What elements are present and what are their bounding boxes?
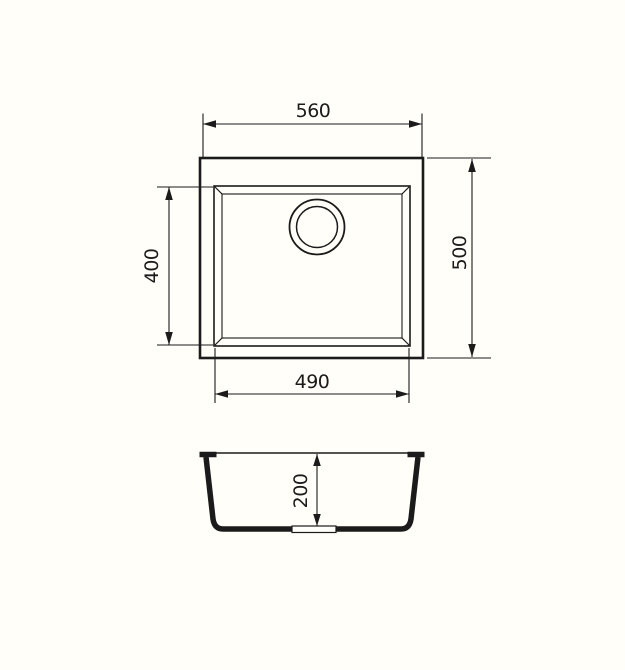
dimension-label-overall-depth: 500 bbox=[449, 236, 471, 271]
bowl-chamfer-top-right bbox=[401, 187, 409, 195]
drawing-canvas: 560 500 400 490 bbox=[0, 0, 625, 670]
arrow-left-icon bbox=[215, 390, 228, 398]
dimension-bowl-width: 490 bbox=[215, 348, 409, 403]
dimension-label-overall-width: 560 bbox=[296, 100, 331, 122]
sink-outer-rim bbox=[200, 158, 423, 358]
bowl-top-edge bbox=[214, 186, 410, 346]
dimension-label-bowl-width: 490 bbox=[295, 371, 330, 393]
bowl-chamfer-bottom-left bbox=[215, 337, 223, 345]
dimension-overall-width: 560 bbox=[203, 100, 422, 157]
top-view bbox=[200, 158, 423, 358]
arrow-up-icon bbox=[468, 159, 476, 172]
dimension-overall-depth: 500 bbox=[427, 158, 491, 358]
bowl-bevel-edge bbox=[222, 194, 402, 338]
arrow-right-icon bbox=[396, 390, 409, 398]
drain-inner-circle bbox=[297, 207, 338, 248]
arrow-left-icon bbox=[203, 120, 216, 128]
bowl-chamfer-top-left bbox=[215, 187, 223, 195]
arrow-down-icon bbox=[165, 332, 173, 345]
sink-dimension-drawing: 560 500 400 490 bbox=[0, 0, 625, 670]
dimension-label-bowl-height: 200 bbox=[290, 474, 312, 509]
section-drain-outlet bbox=[292, 526, 336, 533]
dimension-label-bowl-depth: 400 bbox=[141, 249, 163, 284]
bowl-chamfer-bottom-right bbox=[401, 337, 409, 345]
dimension-bowl-depth: 400 bbox=[141, 187, 213, 345]
arrow-up-icon bbox=[313, 454, 321, 466]
drain-outer-circle bbox=[290, 200, 345, 255]
section-view bbox=[200, 453, 425, 533]
section-bowl-body bbox=[206, 457, 418, 529]
dimension-bowl-height: 200 bbox=[290, 454, 321, 526]
arrow-right-icon bbox=[409, 120, 422, 128]
arrow-up-icon bbox=[165, 187, 173, 200]
arrow-down-icon bbox=[468, 344, 476, 357]
extension-lines-400 bbox=[157, 187, 213, 345]
arrow-down-icon bbox=[313, 514, 321, 526]
